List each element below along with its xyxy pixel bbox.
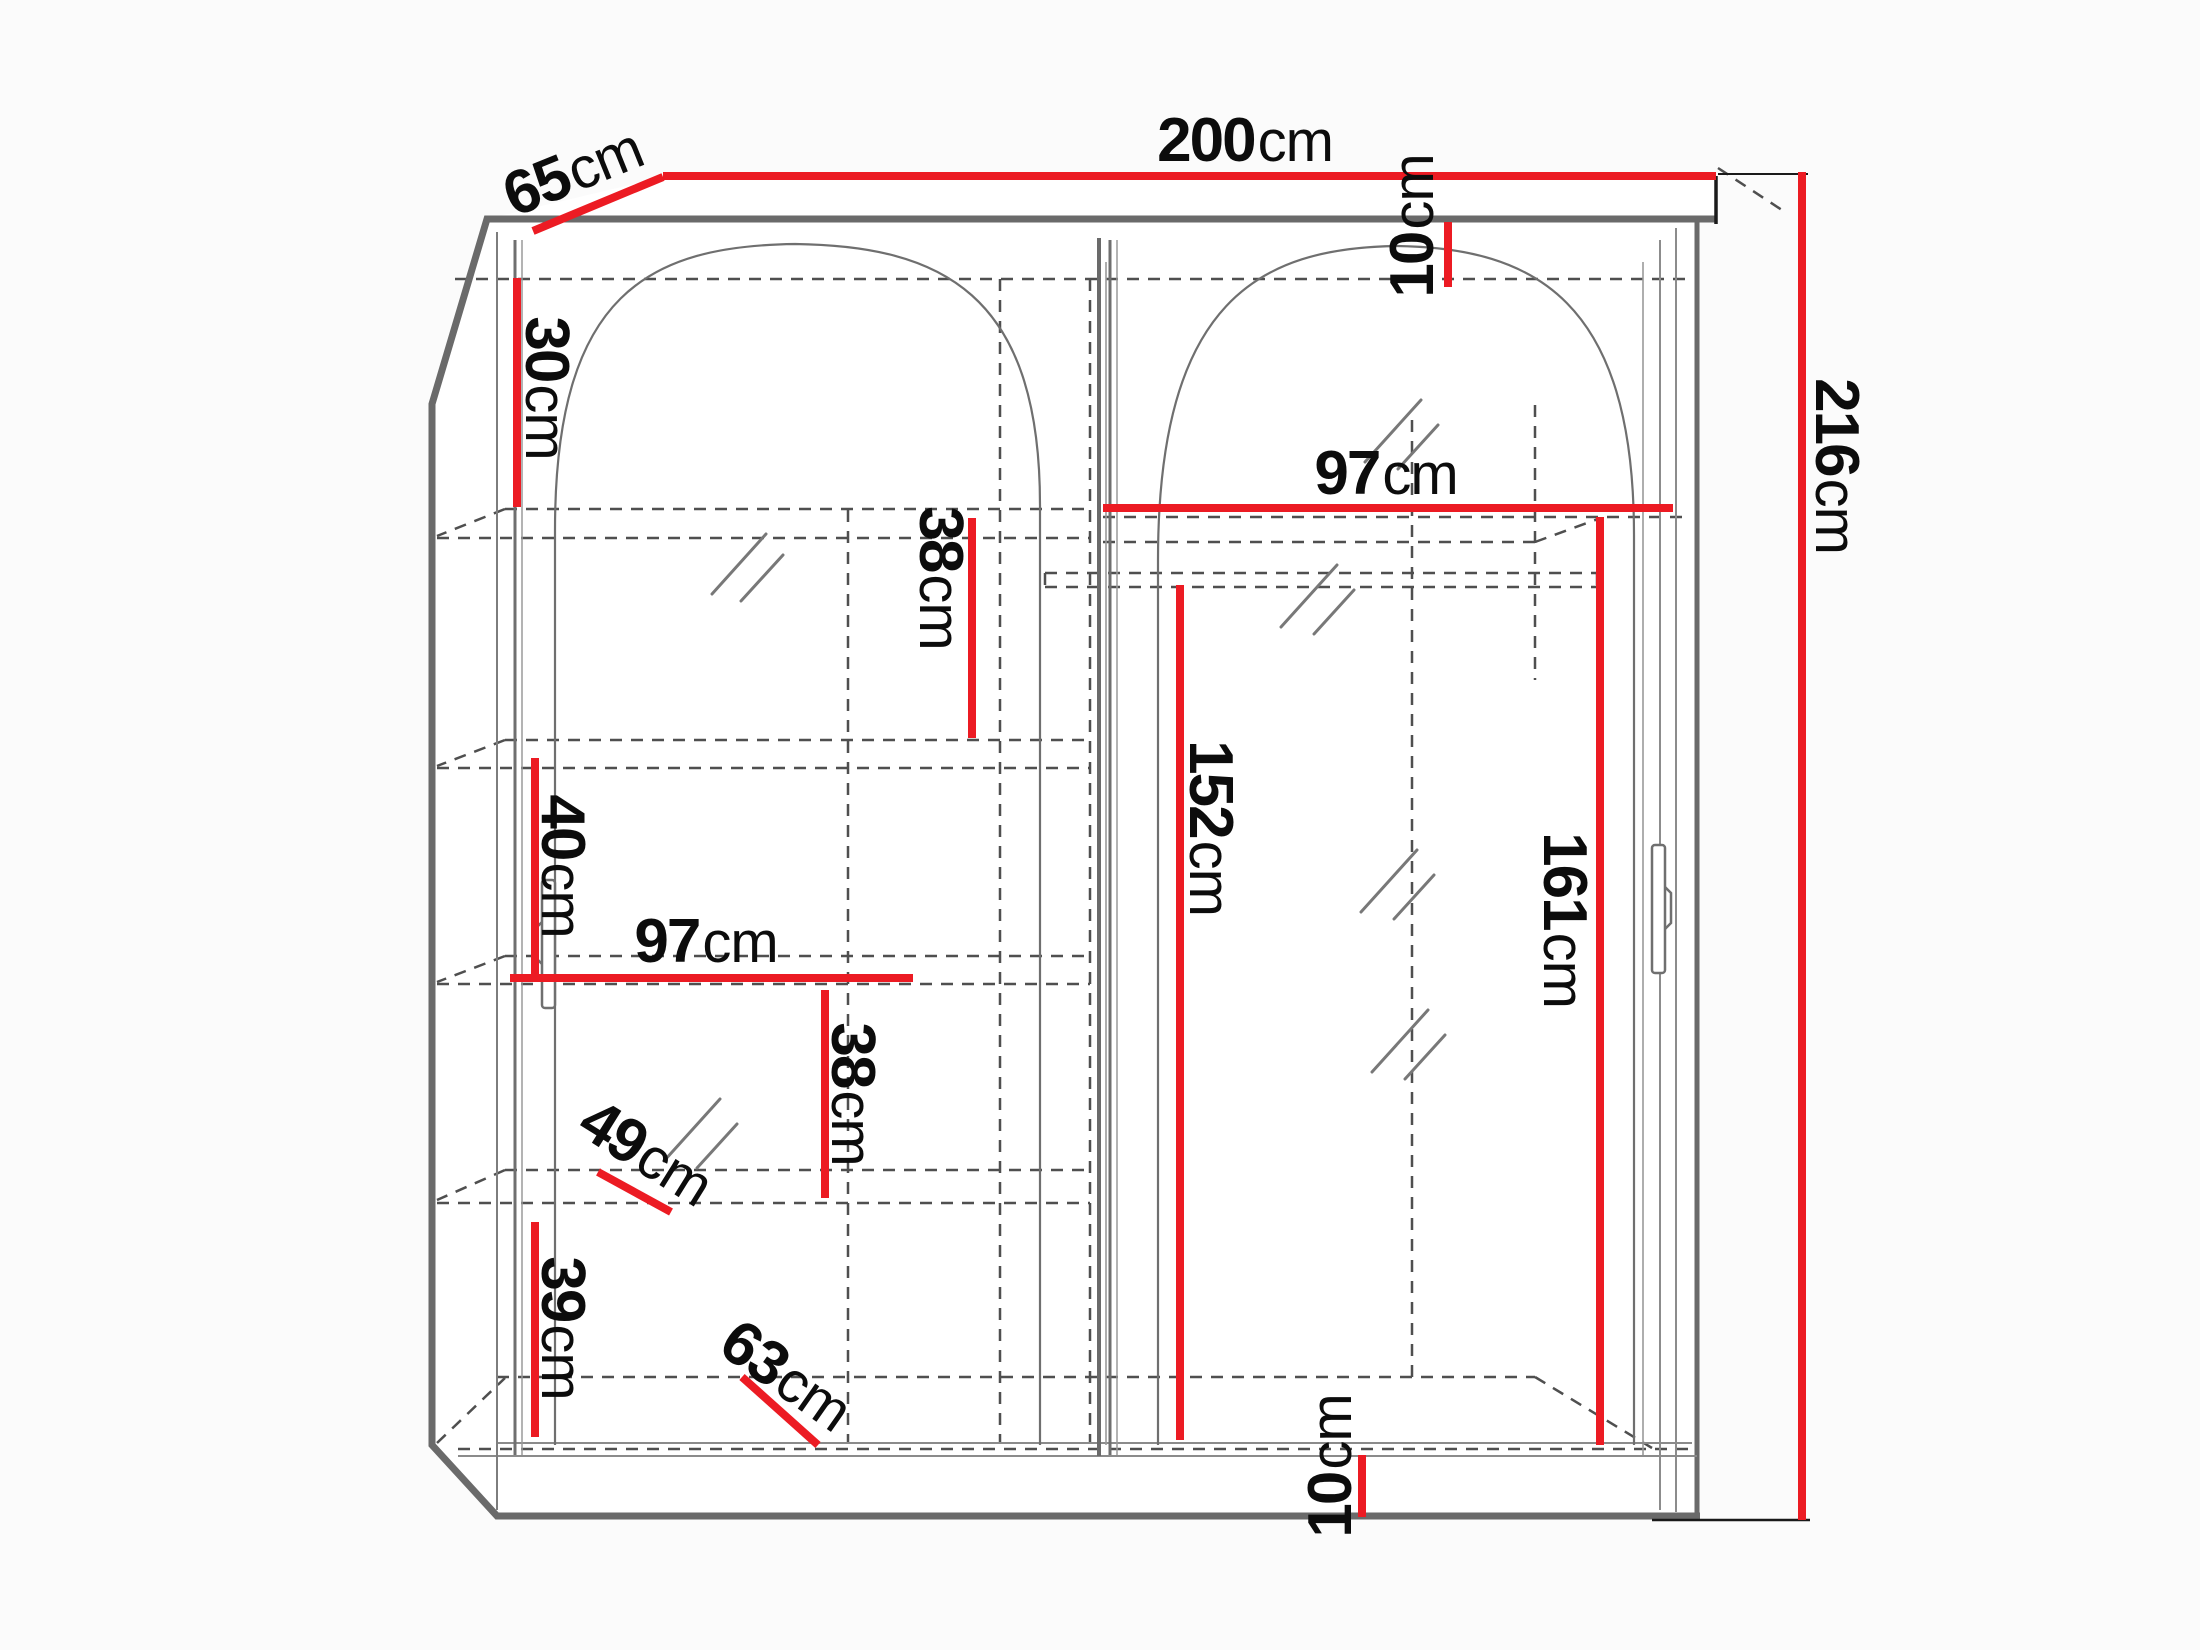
front-face xyxy=(432,219,1716,1516)
wardrobe-dimension-diagram: 200cm 65cm 216cm 10cm 97cm 152cm 161cm 3… xyxy=(0,0,2200,1650)
top-face xyxy=(487,177,1716,219)
wardrobe-faces xyxy=(432,177,1716,1516)
wardrobe-line-art xyxy=(0,0,2200,1650)
